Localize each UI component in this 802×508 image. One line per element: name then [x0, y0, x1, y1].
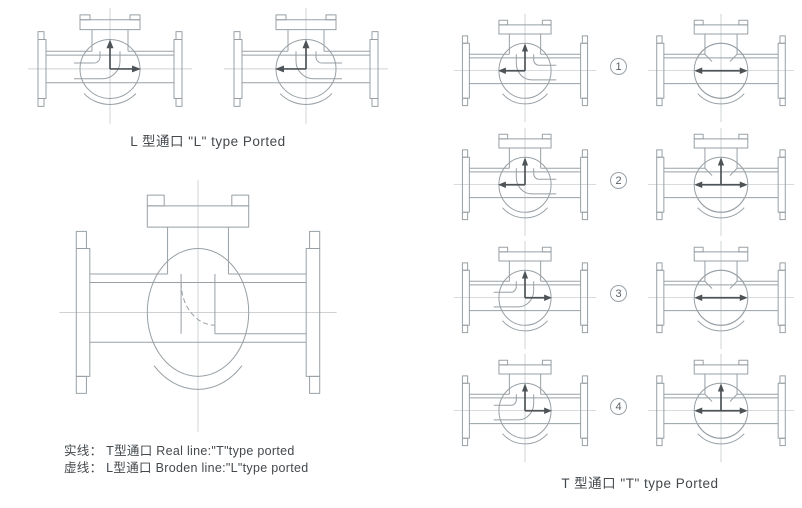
valve-diagram-l-type-1: [26, 6, 194, 126]
legend-broken-line: 虚线： L型通口 Broden line:"L"type ported: [64, 460, 404, 477]
t-ported-row-3: 3: [450, 239, 802, 351]
legend-solid-line: 实线： T型通口 Real line:"T"type ported: [64, 443, 404, 460]
valve-diagram-row2-side: [452, 126, 598, 238]
valve-diagram-row4-front: [646, 352, 796, 464]
position-number-2: 2: [610, 172, 627, 189]
valve-diagram-row3-front: [646, 239, 796, 351]
valve-diagram-cross-section: [56, 176, 340, 436]
t-type-caption: T 型通口 "T" type Ported: [525, 472, 755, 492]
t-ported-row-4: 4: [450, 352, 802, 464]
position-number-3: 3: [610, 285, 627, 302]
valve-diagram-row1-side: [452, 12, 598, 124]
l-type-caption: L 型通口 "L" type Ported: [26, 130, 390, 150]
position-number-1: 1: [610, 58, 627, 75]
t-ported-row-1: 1: [450, 12, 802, 124]
valve-diagram-row2-front: [646, 126, 796, 238]
valve-diagram-row1-front: [646, 12, 796, 124]
position-number-4: 4: [610, 398, 627, 415]
valve-diagram-row4-side: [452, 352, 598, 464]
valve-diagram-row3-side: [452, 239, 598, 351]
valve-port-configuration-diagram: L 型通口 "L" type Ported 实线： T型通口 Real line…: [0, 0, 802, 508]
t-ported-row-2: 2: [450, 126, 802, 238]
line-legend: 实线： T型通口 Real line:"T"type ported 虚线： L型…: [64, 443, 404, 477]
valve-diagram-l-type-2: [222, 6, 390, 126]
